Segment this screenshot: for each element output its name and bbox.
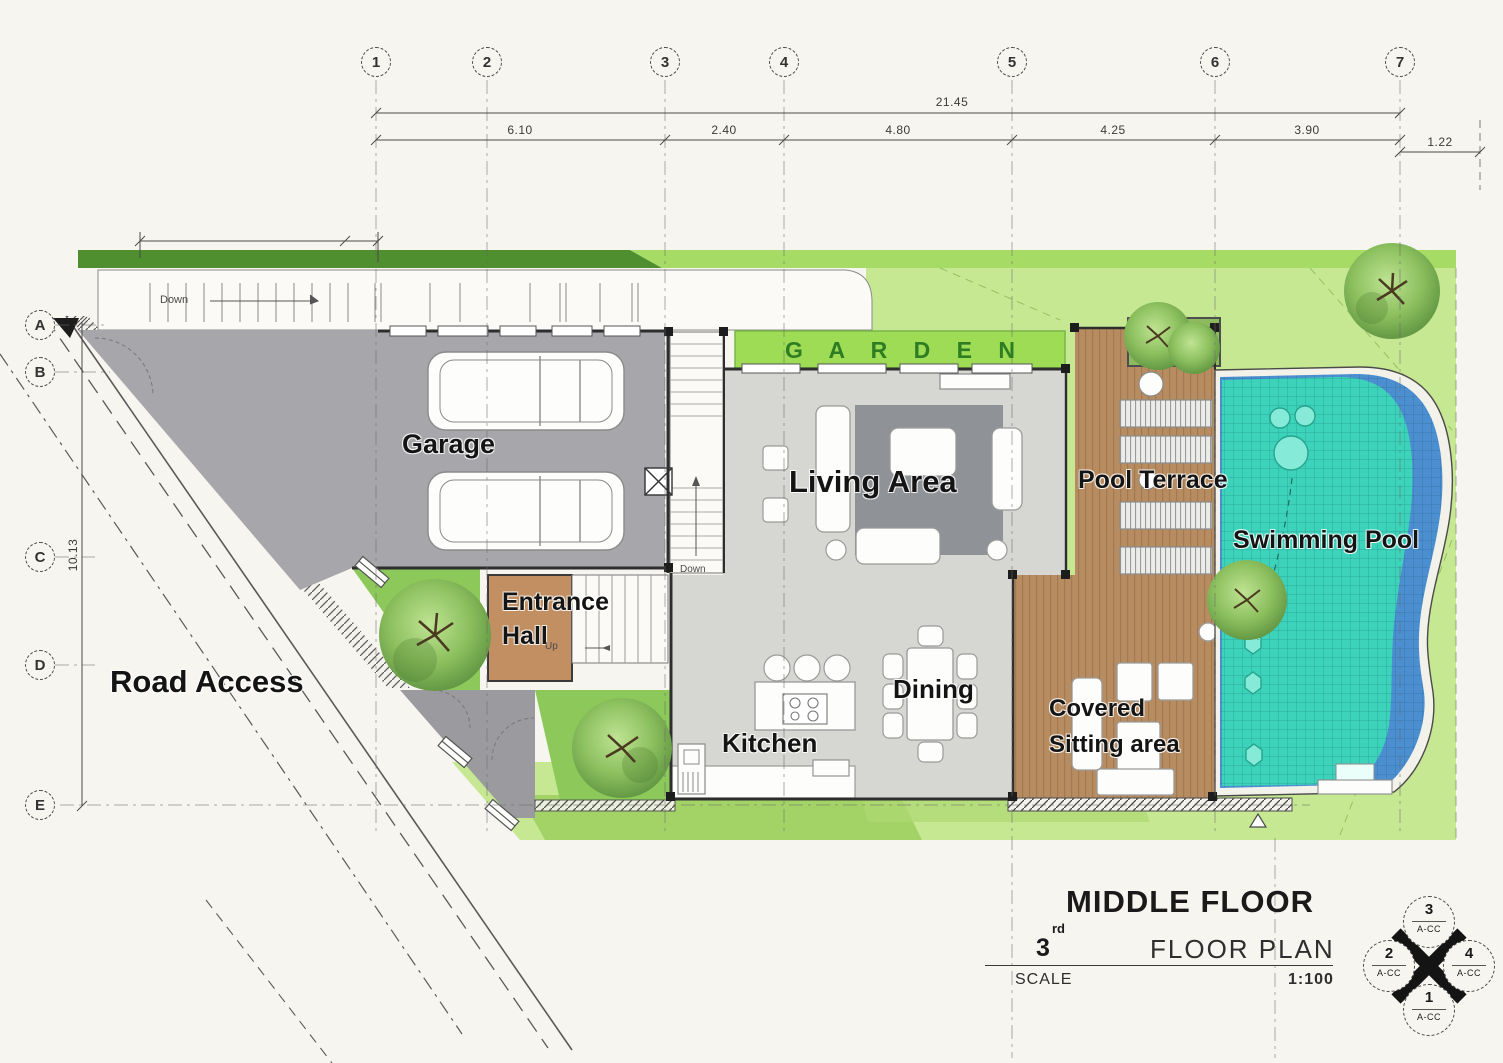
grid-row-a-label: A (35, 317, 46, 334)
tree-lawn-corner (1344, 243, 1440, 339)
tv-console (940, 374, 1010, 389)
dim-segment-2: 2.40 (711, 123, 736, 137)
grid-column-6: 6 (1200, 47, 1230, 77)
deck-table-1 (1139, 372, 1163, 396)
chaise (992, 428, 1022, 510)
sheet-title: MIDDLE FLOOR (1066, 884, 1314, 920)
garden-label: G A R D E N (785, 337, 1025, 364)
dim-segment-3: 4.80 (885, 123, 910, 137)
grid-row-d-label: D (35, 657, 46, 674)
grid-column-2: 2 (472, 47, 502, 77)
compass-top-number: 3 (1412, 899, 1446, 922)
scale-value: 1:100 (1288, 971, 1334, 989)
kitchen-sink (813, 760, 849, 776)
side-table-1 (826, 540, 846, 560)
hedge-dark (78, 250, 662, 268)
grid-column-1-label: 1 (372, 54, 380, 71)
bar-stool-2 (794, 655, 820, 681)
kitchen-label: Kitchen (722, 728, 817, 759)
stair-down-label: Down (680, 564, 706, 575)
compass-bottom-circle: 1 A-CC (1403, 984, 1455, 1036)
sofa-short (856, 528, 940, 564)
floor-number: 3 (1036, 934, 1050, 963)
dim-segment-1: 6.10 (507, 123, 532, 137)
covered-sitting-label-line1: Covered (1049, 695, 1145, 723)
entrance-hall-label-line2: Hall (502, 622, 548, 651)
plan-type: FLOOR PLAN (1150, 934, 1335, 965)
stairs-down-shaft (670, 332, 723, 573)
tree-entry-garden (379, 579, 491, 691)
cooktop (783, 694, 827, 724)
car-2 (428, 472, 624, 550)
title-rule (985, 965, 1333, 966)
grid-column-5-label: 5 (1008, 54, 1016, 71)
stair-up-label: Up (545, 641, 558, 652)
compass-right-ref: A-CC (1444, 966, 1494, 980)
grid-column-7: 7 (1385, 47, 1415, 77)
compass-right-number: 4 (1452, 943, 1486, 966)
bar-stool-1 (764, 655, 790, 681)
floor-plan-sheet: 1 2 3 4 5 6 7 A B C D E 21.45 6.10 2.40 … (0, 0, 1503, 1063)
grid-column-1: 1 (361, 47, 391, 77)
floor-ordinal: rd (1052, 921, 1065, 936)
grid-column-5: 5 (997, 47, 1027, 77)
grid-column-4: 4 (769, 47, 799, 77)
compass-top-ref: A-CC (1404, 922, 1454, 936)
grid-column-6-label: 6 (1211, 54, 1219, 71)
pool-terrace-label: Pool Terrace (1078, 466, 1228, 495)
compass-top-circle: 3 A-CC (1403, 896, 1455, 948)
bar-stool-3 (824, 655, 850, 681)
upper-drive-white (98, 270, 872, 330)
dim-overall: 21.45 (936, 95, 969, 109)
grid-row-a: A (25, 310, 55, 340)
tree-rear-garden (572, 698, 672, 798)
dim-segment-5: 3.90 (1294, 123, 1319, 137)
grid-row-b: B (25, 357, 55, 387)
grid-row-d: D (25, 650, 55, 680)
car-1 (428, 352, 624, 430)
hedge-light (630, 250, 1456, 268)
compass-left-ref: A-CC (1364, 966, 1414, 980)
compass-right-circle: 4 A-CC (1443, 940, 1495, 992)
ramp-down-label: Down (160, 294, 188, 306)
road-access-label: Road Access (110, 664, 304, 700)
tree-planter-2 (1168, 322, 1220, 374)
compass-left-circle: 2 A-CC (1363, 940, 1415, 992)
grid-row-c-label: C (35, 549, 46, 566)
compass-left-number: 2 (1372, 943, 1406, 966)
grid-row-e-label: E (35, 797, 45, 814)
grid-column-7-label: 7 (1396, 54, 1404, 71)
covered-sitting-label-line2: Sitting area (1049, 731, 1180, 759)
tree-pool-edge (1207, 560, 1287, 640)
dim-right-offset: 1.22 (1427, 135, 1452, 149)
pool-step-2 (1336, 764, 1374, 780)
grid-row-b-label: B (35, 364, 46, 381)
grid-column-3-label: 3 (661, 54, 669, 71)
side-table-2 (987, 540, 1007, 560)
compass-bottom-ref: A-CC (1404, 1010, 1454, 1024)
fridge (678, 744, 705, 794)
living-area-label: Living Area (789, 464, 957, 500)
grid-column-3: 3 (650, 47, 680, 77)
grid-row-c: C (25, 542, 55, 572)
compass-bottom-number: 1 (1412, 987, 1446, 1010)
entrance-hall-label-line1: Entrance (502, 588, 609, 617)
grid-column-4-label: 4 (780, 54, 788, 71)
dining-label: Dining (893, 674, 974, 705)
dim-segment-4: 4.25 (1100, 123, 1125, 137)
scale-label: SCALE (1015, 971, 1072, 989)
pool-step (1318, 780, 1392, 794)
dim-site-depth: 10.13 (66, 539, 80, 572)
swimming-pool-label: Swimming Pool (1233, 526, 1419, 555)
grid-row-e: E (25, 790, 55, 820)
garage-label: Garage (402, 429, 495, 460)
grid-column-2-label: 2 (483, 54, 491, 71)
